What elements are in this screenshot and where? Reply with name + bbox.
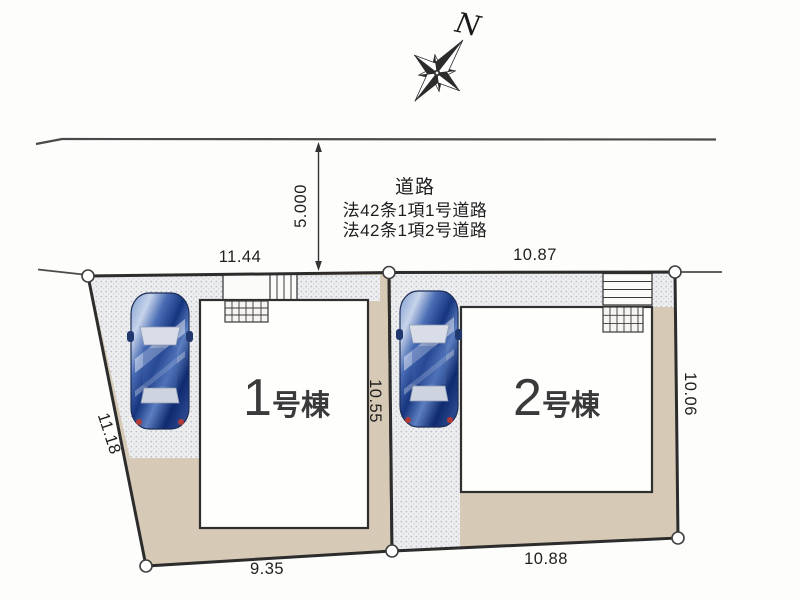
north-label: N — [447, 5, 489, 45]
lot-1-entry-steps — [223, 274, 297, 300]
building-1-suffix: 号棟 — [272, 392, 330, 421]
boundary-marker — [140, 560, 152, 572]
lot-2-porch-grid — [603, 307, 643, 332]
road-line-near-left — [38, 270, 88, 276]
boundary-marker — [82, 270, 94, 282]
boundary-marker — [669, 266, 681, 278]
building-2-label: 2号棟 — [484, 372, 629, 424]
lot1-right-dimension: 10.55 — [364, 371, 384, 431]
lot2-top-dimension: 10.87 — [495, 246, 575, 265]
lot-1-porch-grid — [225, 301, 268, 322]
building-2-suffix: 号棟 — [542, 392, 600, 421]
building-1-number: 1 — [243, 372, 272, 424]
boundary-marker — [383, 267, 395, 279]
lot-2-entry-steps — [603, 274, 652, 306]
car-1-icon — [127, 293, 193, 429]
lot2-right-dimension: 10.06 — [679, 364, 699, 424]
lot2-bottom-dimension: 10.88 — [506, 550, 586, 569]
car-2-icon — [396, 291, 462, 427]
building-2-number: 2 — [513, 372, 542, 424]
building-1-label: 1号棟 — [214, 372, 359, 424]
site-plan-drawing — [0, 0, 800, 600]
boundary-marker — [672, 532, 684, 544]
site-plan: N 道路 法42条1項1号道路 法42条1項2号道路 5.000 11.44 1… — [0, 0, 800, 600]
road-name-label: 道路 — [340, 172, 490, 199]
road-law2-label: 法42条1項2号道路 — [315, 216, 515, 241]
boundary-marker — [386, 545, 398, 557]
road-width-dimension: 5.000 — [292, 176, 312, 236]
lot1-top-dimension: 11.44 — [200, 248, 280, 267]
lot1-bottom-dimension: 9.35 — [227, 560, 307, 579]
road-line-far — [36, 139, 716, 144]
